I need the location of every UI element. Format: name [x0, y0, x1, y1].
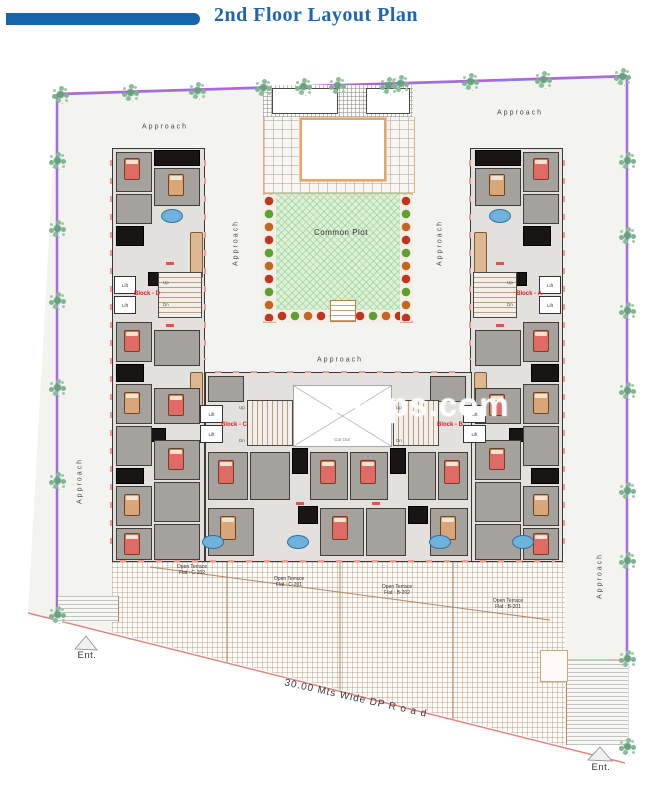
toilet-core: [154, 150, 200, 166]
terrace-structure: [366, 88, 410, 114]
bedroom: [408, 452, 436, 500]
tree-icon: [54, 384, 61, 391]
window-markers: [469, 160, 471, 360]
staircase: [247, 400, 293, 446]
staircase: [158, 272, 202, 318]
bed-icon: [124, 330, 140, 352]
bed-icon: [533, 330, 549, 352]
bed-icon: [332, 516, 348, 540]
open-court: [300, 118, 386, 181]
tree-icon: [624, 307, 631, 314]
approach-label-inner-right: Approach: [437, 220, 444, 266]
stairs-dn-label: Dn: [396, 439, 402, 444]
dining-table-icon: [429, 535, 451, 549]
bedroom: [250, 452, 290, 500]
bed-icon: [320, 460, 336, 484]
pavement-left: [58, 596, 119, 622]
tree-icon: [624, 655, 631, 662]
window-markers: [120, 560, 555, 562]
lift-box: Lift: [114, 276, 136, 294]
bed-icon: [444, 460, 460, 484]
tree-icon: [619, 73, 626, 80]
terrace-label-b201: Open Terrace Flat : B-201: [493, 598, 523, 611]
toilet-core: [116, 468, 144, 484]
plot-steps: [330, 300, 356, 322]
bed-icon: [218, 460, 234, 484]
tree-icon: [57, 91, 64, 98]
lift-label: Lift: [208, 412, 214, 417]
stairs-dn-label: Dn: [163, 303, 169, 308]
tree-icon: [467, 78, 474, 85]
bedroom: [116, 194, 152, 224]
bed-icon: [124, 392, 140, 414]
terrace-line1: Open Terrace: [382, 584, 412, 590]
lift-label: Lift: [122, 303, 128, 308]
flat-number-mark: [372, 502, 380, 505]
stairs-up-label: Up: [239, 406, 245, 411]
bedroom: [154, 482, 200, 522]
toilet-core: [531, 468, 559, 484]
tree-icon: [624, 157, 631, 164]
bedroom: [154, 330, 200, 366]
stairs-up-label: Up: [507, 281, 513, 286]
stairs-up-label: Up: [163, 281, 169, 286]
bed-icon: [533, 533, 549, 555]
bed-icon: [168, 174, 184, 196]
terrace-label-c202: Open Terrace Flat : C-202: [177, 564, 207, 577]
approach-label-outer-left: Approach: [77, 458, 84, 504]
block-c-label: Block - C: [221, 422, 247, 428]
toilet-core: [531, 364, 559, 382]
terrace-line2: Flat : B-202: [384, 590, 410, 596]
tree-icon: [260, 84, 267, 91]
bed-icon: [124, 158, 140, 180]
lift-label: Lift: [547, 283, 553, 288]
lift-label: Lift: [208, 432, 214, 437]
lift-label: Lift: [471, 432, 477, 437]
tree-icon: [624, 487, 631, 494]
bed-icon: [220, 516, 236, 540]
bedroom: [475, 330, 521, 366]
entrance-label-left: Ent.: [78, 650, 97, 661]
cut-out-label: Cut Out: [334, 438, 350, 443]
approach-label-inner-left: Approach: [233, 220, 240, 266]
bed-icon: [533, 392, 549, 414]
tree-icon: [397, 80, 404, 87]
stairs-dn-label: Dn: [239, 439, 245, 444]
terrace-line1: Open Terrace: [493, 598, 523, 604]
flat-number-mark: [496, 324, 504, 327]
bedroom: [154, 524, 200, 560]
terrace-line2: Flat : C-201: [276, 582, 302, 588]
window-markers: [215, 371, 455, 373]
dining-table-icon: [202, 535, 224, 549]
window-markers: [204, 160, 206, 360]
approach-label-top-left: Approach: [142, 124, 188, 131]
tree-icon: [54, 611, 61, 618]
common-plot-label: Common Plot: [314, 229, 368, 237]
bed-icon: [124, 494, 140, 516]
bed-icon: [533, 158, 549, 180]
bedroom: [523, 426, 559, 466]
lift-box: Lift: [114, 296, 136, 314]
bedroom: [116, 426, 152, 466]
shrub-border-left: [263, 195, 276, 321]
shaft: [408, 506, 428, 524]
terrace-line1: Open Terrace: [274, 576, 304, 582]
watermark-text: Props.com: [330, 386, 510, 424]
approach-label-outer-right: Approach: [597, 553, 604, 599]
flat-number-mark: [166, 324, 174, 327]
tree-icon: [385, 82, 392, 89]
flat-number-mark: [296, 502, 304, 505]
bedroom: [208, 376, 244, 402]
window-markers: [110, 160, 112, 550]
bed-icon: [360, 460, 376, 484]
shaft: [292, 448, 308, 474]
tree-icon: [54, 477, 61, 484]
toilet-core: [116, 226, 144, 246]
approach-label-top-right: Approach: [497, 110, 543, 117]
approach-label-center: Approach: [317, 357, 363, 364]
lift-box: Lift: [200, 405, 223, 423]
tree-icon: [624, 557, 631, 564]
bed-icon: [489, 174, 505, 196]
shrub-border-right: [400, 195, 413, 321]
tree-icon: [54, 157, 61, 164]
entrance-label-right: Ent.: [592, 762, 611, 773]
bedroom: [475, 482, 521, 522]
dining-table-icon: [287, 535, 309, 549]
tree-icon: [194, 87, 201, 94]
terrace-label-b202: Open Terrace Flat : B-202: [382, 584, 412, 597]
bedroom: [523, 194, 559, 224]
shaft: [390, 448, 406, 474]
lift-box: Lift: [539, 296, 561, 314]
flat-number-mark: [496, 262, 504, 265]
pavement-right: [566, 660, 628, 745]
tree-icon: [127, 89, 134, 96]
terrace-line2: Flat : C-202: [179, 570, 205, 576]
dining-table-icon: [512, 535, 534, 549]
toilet-core: [475, 150, 521, 166]
lift-label: Lift: [122, 283, 128, 288]
bed-icon: [168, 448, 184, 470]
terrace-structure: [272, 88, 338, 114]
bed-icon: [533, 494, 549, 516]
bed-icon: [168, 394, 184, 416]
lift-box: Lift: [200, 425, 223, 443]
bed-icon: [124, 533, 140, 555]
tree-icon: [334, 82, 341, 89]
lift-box: Lift: [539, 276, 561, 294]
window-markers: [563, 160, 565, 550]
tree-icon: [624, 232, 631, 239]
flat-number-mark: [166, 262, 174, 265]
staircase: [473, 272, 517, 318]
toilet-core: [116, 364, 144, 382]
block-d-label: Block - D: [134, 291, 160, 297]
tree-icon: [54, 297, 61, 304]
bed-icon: [489, 448, 505, 470]
tree-icon: [624, 387, 631, 394]
tree-icon: [300, 83, 307, 90]
terrace-line2: Flat : B-201: [495, 604, 521, 610]
tree-icon: [540, 76, 547, 83]
terrace-label-c201: Open Terrace Flat : C-201: [274, 576, 304, 589]
floor-plan-page: 2nd Floor Layout Plan Common Plot: [0, 0, 663, 800]
tree-icon: [624, 743, 631, 750]
pavement-box: [540, 650, 568, 682]
lift-box: Lift: [463, 425, 486, 443]
lift-label: Lift: [547, 303, 553, 308]
dining-table-icon: [161, 209, 183, 223]
dining-table-icon: [489, 209, 511, 223]
stairs-dn-label: Dn: [507, 303, 513, 308]
block-a-label: Block - A: [516, 291, 542, 297]
toilet-core: [523, 226, 551, 246]
bedroom: [366, 508, 406, 556]
shaft: [298, 506, 318, 524]
tree-icon: [54, 225, 61, 232]
terrace-line1: Open Terrace: [177, 564, 207, 570]
